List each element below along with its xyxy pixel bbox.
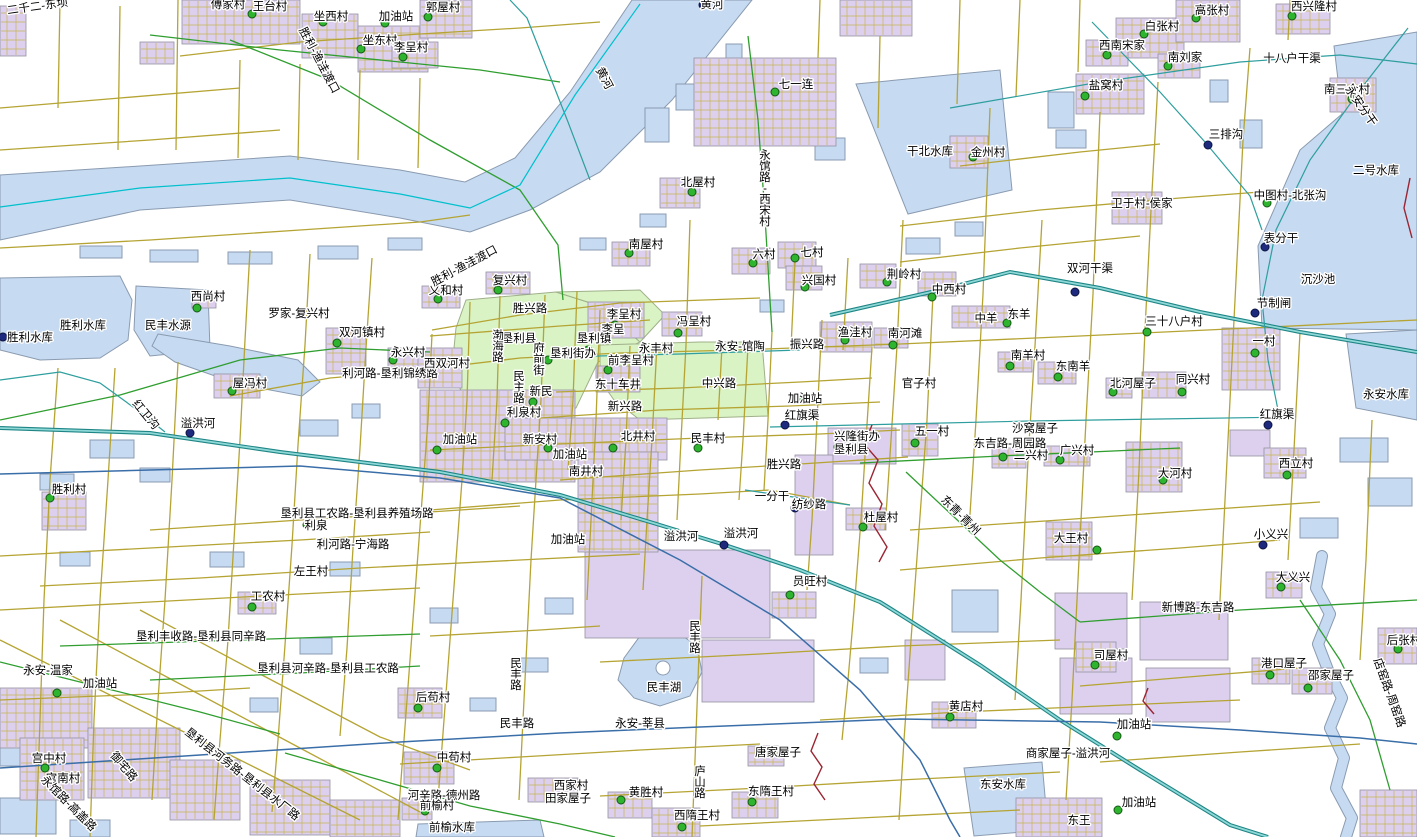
village-dot [859,523,867,531]
map-label: 罗家-复兴村 [268,306,330,320]
map-label: 高张村 [1195,3,1230,17]
water-feature-dot [1251,309,1259,317]
village-block [330,800,400,837]
map-label: 溢洪河 [664,529,699,543]
map-label: 垦利县工农路-垦利县养殖场路 [280,506,434,520]
pond [645,108,669,142]
map-label: 南屋村 [629,237,664,251]
road-line [1016,0,1020,96]
village-dot [678,823,686,831]
map-label: 盐窝村 [1089,78,1124,92]
map-label: 田家屋子 [545,791,591,805]
road-line [176,0,178,150]
pond [1056,130,1086,148]
map-label: 永安-莘县 [615,716,665,730]
map-label: 黄胜村 [629,785,664,799]
road-line [1100,744,1360,762]
road-line [0,88,240,108]
village-dot [674,329,682,337]
map-label: 利泉村 [507,405,542,419]
road-line [298,64,300,160]
map-label: 新民 [530,384,553,398]
village-dot [1081,92,1089,100]
map-label: 屋冯村 [233,376,268,390]
map-label: 二号水库 [1353,163,1399,177]
map-label: 新博路-东吉路 [1162,600,1235,614]
road-line [842,347,872,740]
map-label: 胜兴路 [513,301,548,315]
highway-line [1080,600,1417,622]
map-label: 溢洪河 [724,526,759,540]
map-label: 民丰湖 [647,680,682,694]
village-dot [946,713,954,721]
water-feature-dot [0,333,7,341]
map-label: 永兴村 [391,345,426,359]
village-dot [791,254,799,262]
map-label: 东南羊 [1056,359,1091,373]
map-label: 七一连 [779,77,814,91]
village-dot [694,444,702,452]
map-label: 表分干 [1264,231,1299,245]
map-label: 六村 [753,247,776,261]
pond [520,658,548,672]
map-label: 永丰村 [639,341,674,355]
map-label: 利河路-宁海路 [317,537,390,551]
village-dot [1283,471,1291,479]
map-viewport[interactable]: 二千二-东坝傅家村王台村坐西村加油站郭屋村坐东村李呈村胜利-渔洼渡口黄河黄河西兴… [0,0,1417,837]
pond [210,552,244,567]
river-course [1316,556,1352,837]
road-line [118,6,120,150]
village-dot [529,398,537,406]
road-line [1288,332,1300,560]
map-label: 东吉路-周园路 [974,436,1047,450]
village-dot [609,444,617,452]
map-label: 金州村 [971,145,1006,159]
map-label: 民丰村 [691,431,726,445]
map-label: 东王 [1068,814,1091,827]
pond [80,246,122,258]
canal-line [0,372,100,383]
village-dot [53,689,61,697]
village-dot [333,339,341,347]
map-label: 小义兴 [1254,528,1289,541]
map-label: 加油站 [83,676,118,690]
map-label: 红旗渠 [1260,407,1295,421]
village-block [140,42,174,64]
map-label: 七村 [801,245,824,259]
map-label: 中西村 [932,282,967,296]
map-label: 北河屋子 [1110,377,1156,390]
map-label: 渔洼村 [838,325,873,339]
village-dot [786,591,794,599]
map-label: 沉沙池 [1301,273,1336,286]
village-dot [1056,456,1064,464]
map-label: 一村 [1253,334,1276,348]
map-label: 西家村 [554,778,589,792]
map-label: 一分干 [755,490,790,503]
map-label: 振兴路 [790,337,825,351]
pond [90,440,134,458]
map-label: 宫中村 [32,751,67,765]
village-dot [41,764,49,772]
village-dot [1143,328,1151,336]
pond [470,698,496,711]
map-label: 双河镇村 [339,325,385,339]
map-label: 中羊 [975,311,998,325]
road-line [430,626,600,636]
map-label: 后苟村 [416,690,451,704]
map-label: 五一村 [915,424,950,438]
water-feature-dot [1259,541,1267,549]
lake-island [656,661,670,675]
map-label: 永安-馆陶 [715,339,765,353]
map-label: 员旺村 [793,574,828,588]
pond [676,84,696,110]
map-label: 王台村 [253,0,288,13]
map-label: 加油站 [379,9,414,23]
map-label: 西南宋家 [1099,38,1145,52]
village-dot [494,286,502,294]
map-label: 前榆村 [420,798,455,812]
map-label: 官子村 [902,376,937,390]
map-label: 西兴隆村 [1291,0,1337,13]
map-label: 胜利水库 [60,318,106,332]
levee-line [811,733,825,800]
pond [952,590,998,632]
map-label: 加油站 [551,532,586,546]
pond [0,798,56,834]
road-line [214,250,250,820]
map-label: 加油站 [443,432,478,446]
map-label: 民丰路 [500,716,535,730]
map-label: 西立村 [1279,456,1314,470]
map-label: 荆岭村 [887,267,922,281]
village-block [694,58,836,146]
water-feature-dot [1264,421,1272,429]
map-label: 东十车井 [595,377,641,391]
road-line [1078,0,1080,72]
pond [150,250,198,262]
map-label: 南河滩 [888,326,923,340]
village-dot [1091,661,1099,669]
village-dot [1266,671,1274,679]
pond [318,246,358,259]
map-label: 白张村 [1145,19,1180,33]
village-dot [1178,388,1186,396]
village-dot [889,341,897,349]
map-label: 三十八户村 [1145,314,1203,328]
map-label: 二兴村 [1014,448,1049,462]
village-dot [1251,349,1259,357]
map-label: 垦利丰收路-垦利县同辛路 [136,629,267,643]
map-label: 西尚村 [191,289,226,303]
pond [760,300,784,312]
pond [1340,438,1388,462]
village-dot [1304,684,1312,692]
map-label: 坐西村 [314,9,349,23]
map-label: 郭屋村 [426,0,461,14]
map-label: 永馆路-西宋村 [759,148,771,228]
pond [300,420,338,436]
map-label: 东隋王村 [748,784,794,798]
village-dot [501,419,509,427]
village-dot [433,446,441,454]
map-label: 坐东村 [363,33,398,47]
map-label: 东青-青州 [938,493,982,537]
map-label: 大义兴 [1276,570,1311,584]
map-label: 新安村 [523,432,558,446]
pond [388,238,422,250]
map-label: 中图村-北张沟 [1254,188,1327,202]
map-label: 垦利县 [502,332,537,345]
map-label: 前李呈村 [608,353,654,367]
map-label: 北屋村 [681,175,716,189]
map-label: 兴国村 [802,273,837,287]
village-dot [1054,373,1062,381]
village-dot [1277,583,1285,591]
map-label: 加油站 [553,447,588,461]
map-label: 李呈村 [394,40,429,54]
water-feature-dot [186,429,194,437]
map-label: 中兴路 [702,376,737,390]
land-block [1146,668,1230,722]
map-label: 红卫沟 [130,397,162,432]
map-label: 同兴村 [1176,372,1211,386]
map-label: 利泉 [305,518,328,532]
map-canvas[interactable]: 二千二-东坝傅家村王台村坐西村加油站郭屋村坐东村李呈村胜利-渔洼渡口黄河黄河西兴… [0,0,1417,837]
map-label: 傅家村 [211,0,246,11]
water-body [1258,32,1417,330]
pond [1300,518,1338,538]
village-dot [433,764,441,772]
map-label: 工农村 [251,589,286,603]
pond [430,608,458,623]
pond [1210,80,1228,102]
map-label: 永安-温家 [23,663,73,677]
village-dot [1113,732,1121,740]
map-label: 双河干渠 [1067,262,1113,275]
road-line [272,254,310,812]
map-label: 胜利村 [52,482,87,496]
map-label: 冯呈村 [677,314,712,328]
village-dot [414,704,422,712]
map-label: 节制闸 [1257,297,1292,310]
pond [545,598,573,614]
map-label: 红旗渠 [785,408,820,422]
map-label: 李呈村 [607,307,642,321]
road-line [58,0,60,108]
map-label: 加油站 [1117,717,1152,731]
map-label: 西双河村 [424,356,470,370]
map-label: 中苟村 [437,750,472,764]
map-label: 民丰水源 [145,318,191,332]
map-label: 加油站 [1122,795,1157,809]
map-label: 纺纱路 [792,497,827,511]
map-label: 后张村 [1387,633,1417,647]
map-label: 民丰路 [689,621,701,655]
road-line [0,588,420,610]
map-label: 垦利镇 [577,331,612,345]
road-line [818,0,820,58]
water-feature-dot [781,421,789,429]
map-label: 唐家屋子 [755,745,801,759]
map-label: 民主路 [513,371,525,405]
village-dot [748,798,756,806]
pond [60,552,90,566]
map-label: 东羊 [1008,307,1031,321]
pond [250,698,278,712]
village-dot [911,439,919,447]
map-label: 卫于村-侯家 [1111,196,1173,210]
pond [352,404,380,418]
pond [906,238,940,254]
village-dot [399,53,407,61]
map-label: 黄河 [701,0,724,11]
pond [580,238,606,250]
village-dot [617,796,625,804]
map-label: 干北水库 [907,144,953,158]
map-label: 胜利水库 [7,330,53,344]
village-dot [193,304,201,312]
map-label: 司屋村 [1094,648,1129,662]
land-block [585,550,770,638]
map-label: 沙窝屋子 [1012,421,1058,435]
map-label: 十八户干渠 [1263,51,1321,65]
village-dot [1288,12,1296,20]
map-label: 三排沟 [1209,127,1244,141]
map-label: 黄店村 [949,699,984,713]
map-label: 东安水库 [980,777,1026,791]
pond [640,214,666,227]
road-line [418,78,420,168]
map-label: 垦利街办 [550,346,596,360]
village-dot [604,366,612,374]
map-label: 复兴村 [493,273,528,287]
pond [860,658,888,673]
map-label: 杜屋村 [864,510,899,524]
map-label: 民丰路 [510,658,522,692]
map-label: 邵家屋子 [1308,668,1354,682]
village-dot [248,603,256,611]
road-line [1132,82,1158,600]
map-label: 店窑路-周窑路 [1371,656,1409,730]
map-label: 西隋王村 [674,808,720,822]
village-dot [1103,51,1111,59]
village-dot [424,13,432,21]
map-label: 左王村 [294,564,329,578]
village-dot [688,188,696,196]
map-label: 庐山路 [694,764,706,800]
map-label: 溢洪河 [181,416,216,430]
pond [300,638,332,654]
pond [955,222,983,236]
map-label: 胜兴路 [767,457,802,471]
map-label: 加油站 [788,391,823,405]
map-label: 渤海路 [492,329,504,364]
map-label: 大河村 [1158,466,1193,480]
map-label: 兴隆街办 [834,429,880,443]
map-label: 南井村 [569,464,604,478]
map-label: 永安水库 [1363,387,1409,401]
pond [1048,92,1074,128]
water-feature-dot [1071,288,1079,296]
village-dot [1006,362,1014,370]
map-label: 南羊村 [1011,348,1046,362]
map-label: 垦利县河辛路-垦利县工农路 [257,661,399,675]
map-label: 广兴村 [1060,443,1095,457]
map-label: 垦利县 [834,443,869,456]
land-block [702,640,814,702]
map-label: 府前街 [533,341,545,377]
map-label: 港口屋子 [1261,657,1307,670]
water-feature-dot [720,541,728,549]
map-label: 新兴路 [608,399,643,413]
map-label: 南刘家 [1168,50,1203,64]
village-dot [1093,546,1101,554]
road-line [238,60,240,158]
map-label: 商家屋子-溢洪河 [1026,746,1111,760]
village-dot [999,453,1007,461]
map-label: 大王村 [1054,531,1089,545]
pond [1368,478,1412,506]
village-block [88,728,180,798]
map-label: 前榆水库 [429,820,475,834]
water-body [0,276,132,360]
road-line [358,70,360,160]
water-feature-dot [1204,141,1212,149]
map-label: 北井村 [621,429,656,443]
